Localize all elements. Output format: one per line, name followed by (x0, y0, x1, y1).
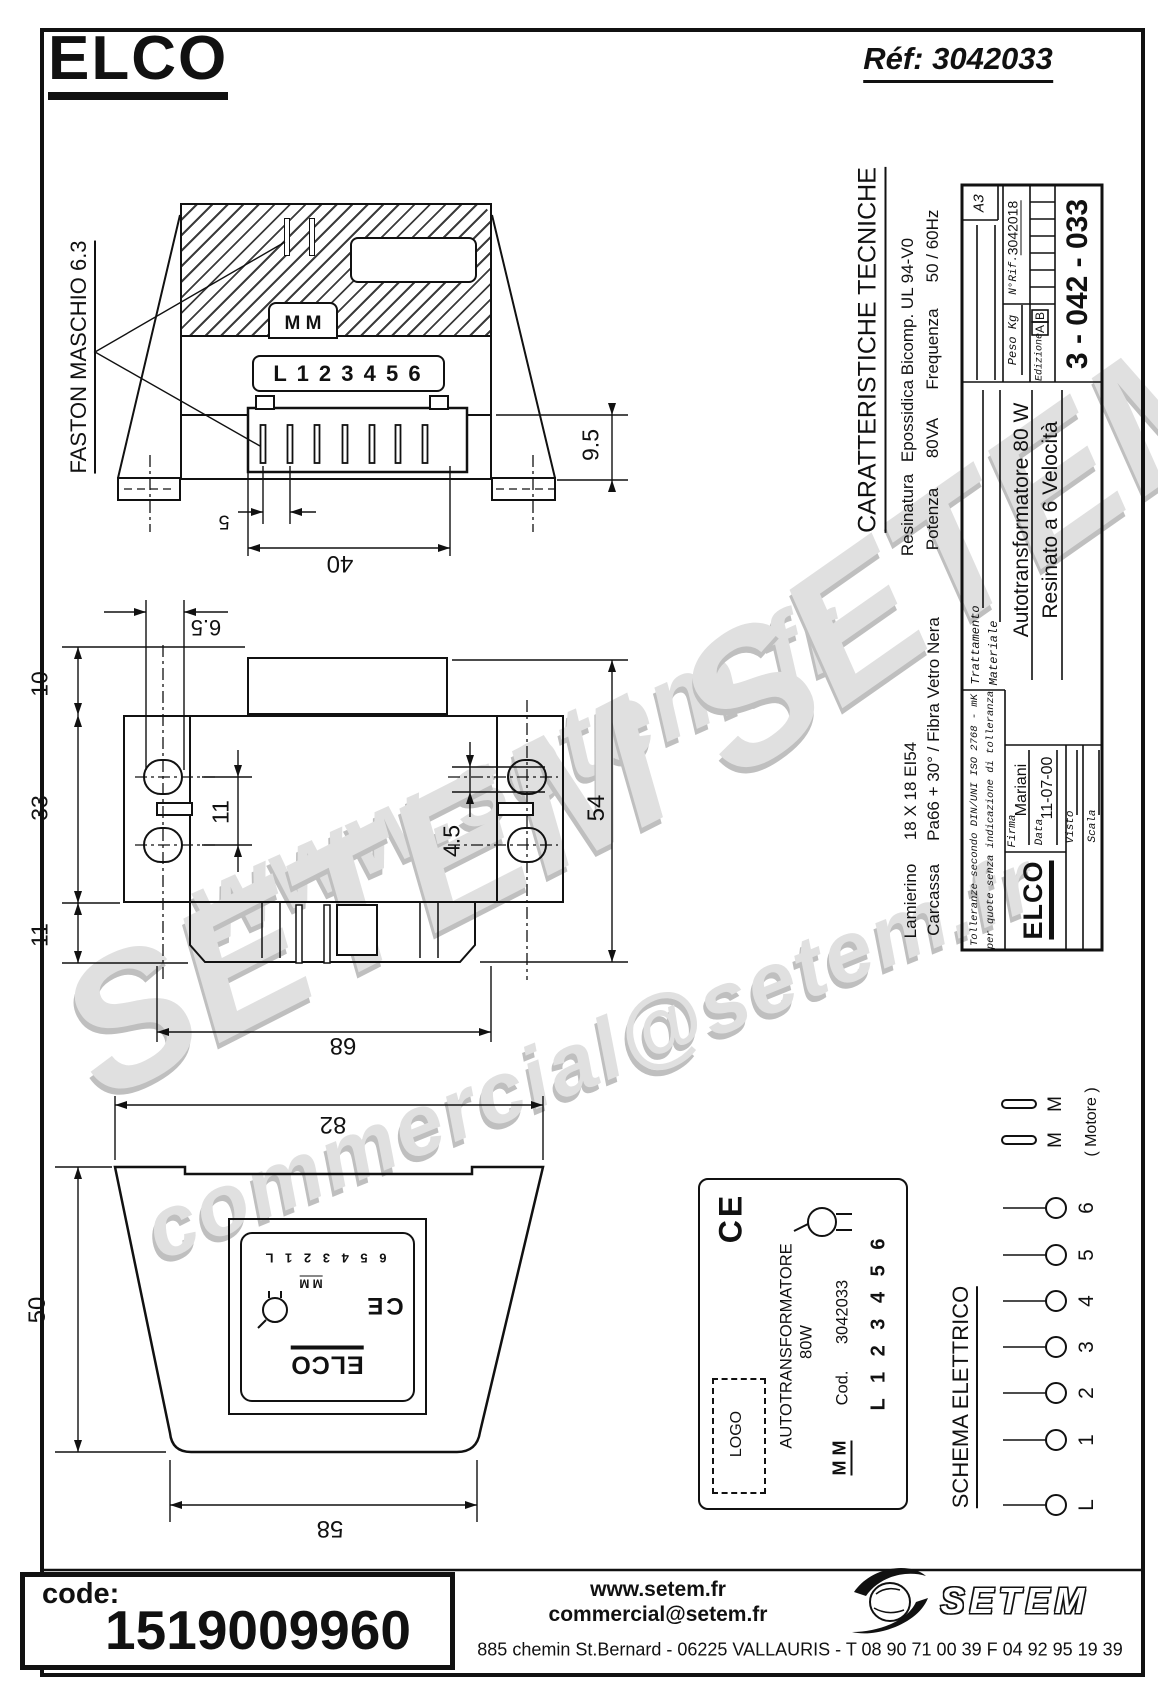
tech-potenza-value: 80VA (923, 418, 943, 458)
tb-firma-label: Firma (1007, 814, 1019, 847)
footer-email: commercial@setem.fr (549, 1603, 768, 1627)
top-view-pin-2 (324, 905, 330, 963)
footer-web: www.setem.fr (590, 1578, 726, 1602)
front-view-terminals-label: L 1 2 3 4 5 6 (273, 361, 422, 387)
tech-potenza-label: Potenza (923, 488, 943, 550)
tb-nrif-value: 3042018 (1005, 201, 1022, 256)
faston-callout: FASTON MASCHIO 6.3 (66, 240, 96, 473)
schema-motor-bar-1 (1002, 1100, 1036, 1108)
dim-9-5: 9.5 (578, 429, 605, 461)
ref-number: Réf: 3042033 (863, 41, 1053, 83)
schema-terminal-3: 3 (1075, 1341, 1099, 1353)
label-detail-logo-placeholder: LOGO (728, 1411, 746, 1457)
dim-33: 33 (27, 795, 54, 821)
schema-motor-note: ( Motore ) (1083, 1087, 1101, 1156)
tech-carcassa-value: Pa66 + 30° / Fibra Vetro Nera (924, 617, 944, 841)
tb-materiale: Materiale (987, 621, 1001, 686)
dim-40: 40 (327, 549, 354, 577)
dim-68: 68 (330, 1031, 357, 1059)
label-detail-mm: M M (830, 1441, 853, 1476)
schema-terminal-L: L (1075, 1499, 1099, 1511)
schema-motor-bar-2 (1002, 1136, 1036, 1144)
schema-terminal-circles (1046, 1198, 1066, 1515)
tb-drawing-code: 3 - 042 - 033 (1061, 199, 1095, 369)
tb-firma-value: Mariani (1013, 764, 1031, 816)
elco-logo: ELCO (48, 28, 228, 100)
tech-frequenza-label: Frequenza (923, 308, 943, 389)
label-detail-motor-pins (794, 1214, 852, 1231)
side-label-motor-icon (263, 1298, 287, 1322)
tb-edizione: Edizione (1035, 333, 1046, 381)
dim-58: 58 (317, 1514, 344, 1542)
label-detail-title: AUTOTRANSFORMATORE (778, 1243, 797, 1448)
dim-4-5: 4.5 (439, 825, 466, 857)
dim-50: 50 (24, 1297, 52, 1324)
tb-desc2: Resinato a 6 Velocità (1039, 421, 1063, 618)
dim-5: 5 (218, 510, 229, 533)
top-view-flange-dividers (190, 715, 497, 903)
tb-tol2: per quote senza indicazione di tolleranz… (985, 691, 997, 949)
tech-title: CARATTERISTICHE TECNICHE (854, 167, 887, 533)
dim-6-5: 6.5 (191, 614, 222, 640)
tb-trattamento: Trattamento (969, 605, 983, 684)
top-view-center-block (337, 905, 377, 955)
label-detail-cod-label: Cod. (834, 1371, 853, 1406)
side-label-ce: CE (364, 1291, 403, 1319)
tb-elco-logo: ELCO (1018, 860, 1054, 939)
label-detail-ce-mark: CE (713, 1193, 750, 1243)
tb-desc1: Autotransformatore 80 W (1010, 403, 1034, 638)
schema-title: SCHEMA ELETTRICO (948, 1286, 978, 1508)
top-view-notch-right (498, 803, 533, 815)
dim-11-holes: 11 (208, 800, 235, 824)
top-view-connector-outline (190, 903, 475, 962)
dim-10: 10 (27, 671, 54, 697)
footer-address: 885 chemin St.Bernard - 06225 VALLAURIS … (477, 1640, 1122, 1661)
label-detail-power: 80W (798, 1325, 817, 1359)
schema-terminal-2: 2 (1075, 1387, 1099, 1399)
side-label-terminals: 6 5 4 3 2 1 L (262, 1251, 387, 1266)
side-label-elco-logo: ELCO (290, 1346, 363, 1379)
dim-11-left: 11 (27, 923, 54, 947)
tb-tol1: Tolleranze secondo DIN/UNI ISO 2768 - mK (969, 694, 981, 946)
tech-lamierino-value: 18 X 18 EI54 (901, 742, 921, 840)
schema-terminal-4: 4 (1075, 1295, 1099, 1307)
dim-82: 82 (320, 1110, 347, 1138)
side-view-body (115, 1167, 543, 1452)
tech-frequenza-value: 50 / 60Hz (923, 210, 943, 283)
schema-terminal-5: 5 (1075, 1249, 1099, 1261)
tech-carcassa-label: Carcassa (924, 864, 944, 936)
code-value: 1519009960 (105, 1598, 411, 1662)
centerlines (135, 455, 558, 980)
label-detail-terminals: L 1 2 3 4 5 6 (868, 1234, 891, 1411)
schema-m1: M (1045, 1096, 1067, 1112)
front-view-connector-step-left (256, 396, 274, 409)
schema-terminal-1: 1 (1075, 1434, 1099, 1446)
schema-m2: M (1045, 1132, 1067, 1148)
tb-visto: Visto (1065, 810, 1077, 843)
setem-logo-graphic (852, 1568, 928, 1633)
tech-lamierino-label: Lamierino (901, 864, 921, 939)
tb-nrif-label: N°Rif. (1008, 255, 1020, 295)
side-label-mm: M M (299, 1276, 322, 1291)
front-view-connector-step-right (430, 396, 448, 409)
technical-drawing-page: www.setem.fr SETEM SETEM commercial@sete… (0, 0, 1158, 1690)
schema-terminal-6: 6 (1075, 1202, 1099, 1214)
label-detail-cod-value: 3042033 (834, 1280, 853, 1344)
footer-setem-wordmark: SETEM (940, 1580, 1089, 1622)
top-view-mounting-holes (144, 760, 546, 862)
tb-scala: Scala (1087, 809, 1099, 842)
tb-peso: Peso Kg (1006, 315, 1020, 365)
top-view-notch-left (157, 803, 192, 815)
top-view-pin-1 (296, 905, 302, 963)
tb-data-value: 11-07-00 (1039, 757, 1057, 820)
tb-rev-b: B (1033, 312, 1047, 320)
tb-data-label: Data (1034, 819, 1046, 845)
front-view-mm-label: M M (285, 313, 322, 335)
label-detail-motor-icon (808, 1208, 836, 1236)
tech-resinatura-label: Resinatura (898, 474, 918, 556)
tech-resinatura-value: Epossidica Bicomp. UL 94-V0 (898, 238, 918, 462)
front-view-connector (248, 408, 467, 472)
dim-54: 54 (583, 795, 611, 822)
tb-rev-a: A (1033, 325, 1047, 333)
tb-format: A3 (972, 194, 989, 212)
